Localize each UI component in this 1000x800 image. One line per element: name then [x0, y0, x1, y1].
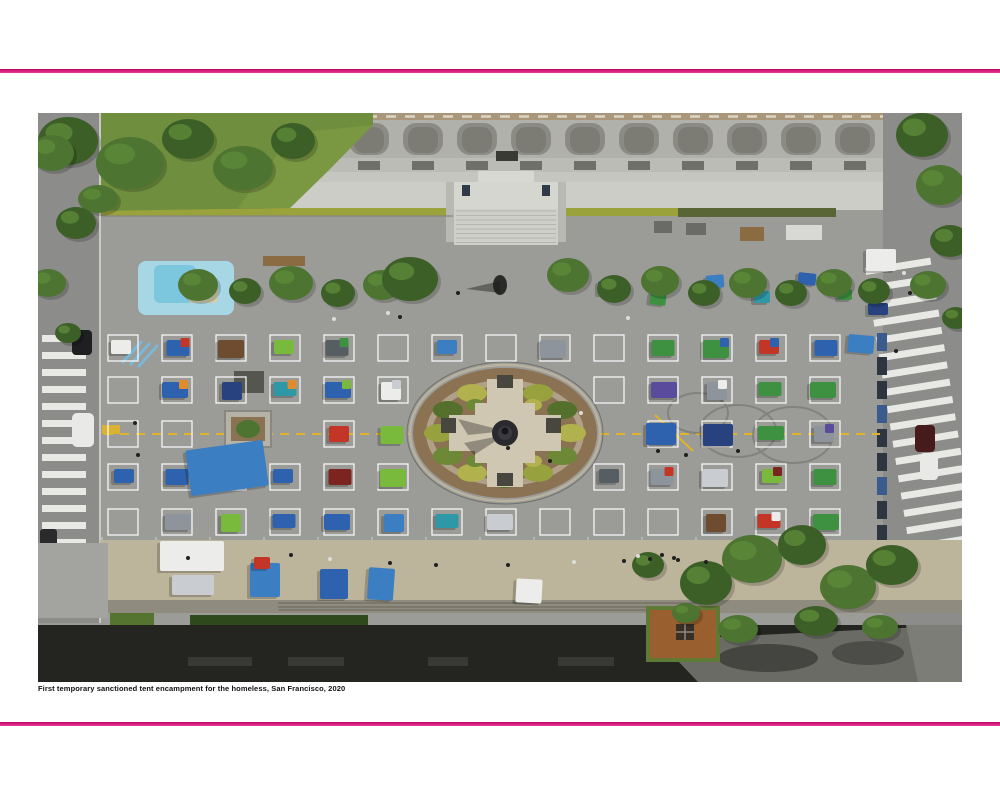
parked-car: [915, 425, 935, 452]
bottom-rule: [0, 722, 1000, 726]
grand-steps: [446, 182, 566, 245]
lamp-statue: [542, 185, 550, 196]
page: First temporary sanctioned tent encampme…: [0, 0, 1000, 800]
photo-caption: First temporary sanctioned tent encampme…: [38, 684, 345, 693]
bench-row: [263, 256, 305, 266]
entrance-doorway: [496, 151, 518, 161]
lamp-statue: [462, 185, 470, 196]
aerial-photo-illustration: [38, 113, 962, 682]
parked-car: [920, 453, 938, 480]
aerial-photo: [38, 113, 962, 682]
parked-car: [72, 413, 94, 447]
top-rule: [0, 69, 1000, 73]
